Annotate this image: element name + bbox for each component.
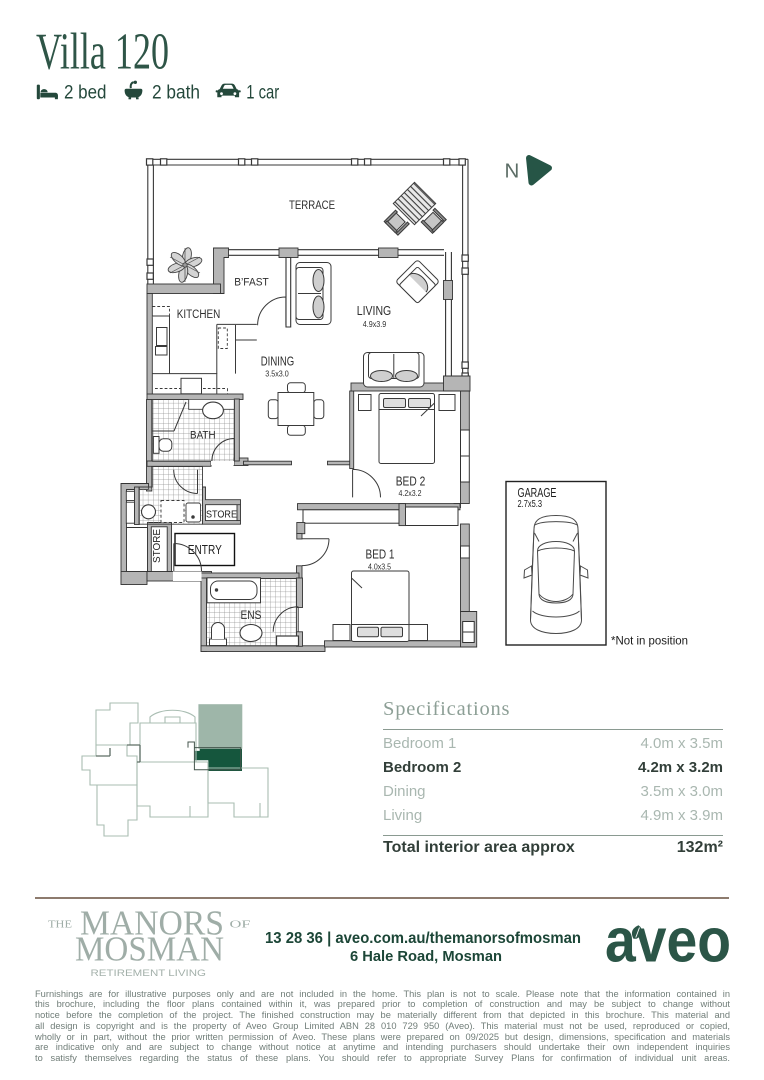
svg-text:BATH: BATH — [190, 429, 216, 441]
svg-text:ENTRY: ENTRY — [188, 542, 222, 557]
svg-text:aveo: aveo — [605, 907, 731, 976]
svg-text:ENS: ENS — [241, 610, 262, 622]
svg-text:OF: OF — [230, 919, 251, 931]
svg-text:KITCHEN: KITCHEN — [177, 309, 221, 321]
svg-text:MOSMAN: MOSMAN — [75, 930, 224, 969]
svg-text:DINING: DINING — [261, 355, 295, 369]
svg-text:THE: THE — [48, 919, 72, 931]
svg-text:3.5x3.0: 3.5x3.0 — [265, 370, 289, 379]
svg-text:STORE: STORE — [206, 510, 237, 521]
svg-text:STORE: STORE — [152, 529, 163, 563]
svg-text:TERRACE: TERRACE — [289, 200, 335, 212]
svg-text:13 28 36 | aveo.com.au/themano: 13 28 36 | aveo.com.au/themanorsofmosman — [265, 930, 581, 947]
svg-text:6 Hale Road, Mosman: 6 Hale Road, Mosman — [350, 948, 502, 965]
svg-text:RETIREMENT LIVING: RETIREMENT LIVING — [91, 968, 207, 979]
svg-text:B’FAST: B’FAST — [234, 277, 269, 289]
